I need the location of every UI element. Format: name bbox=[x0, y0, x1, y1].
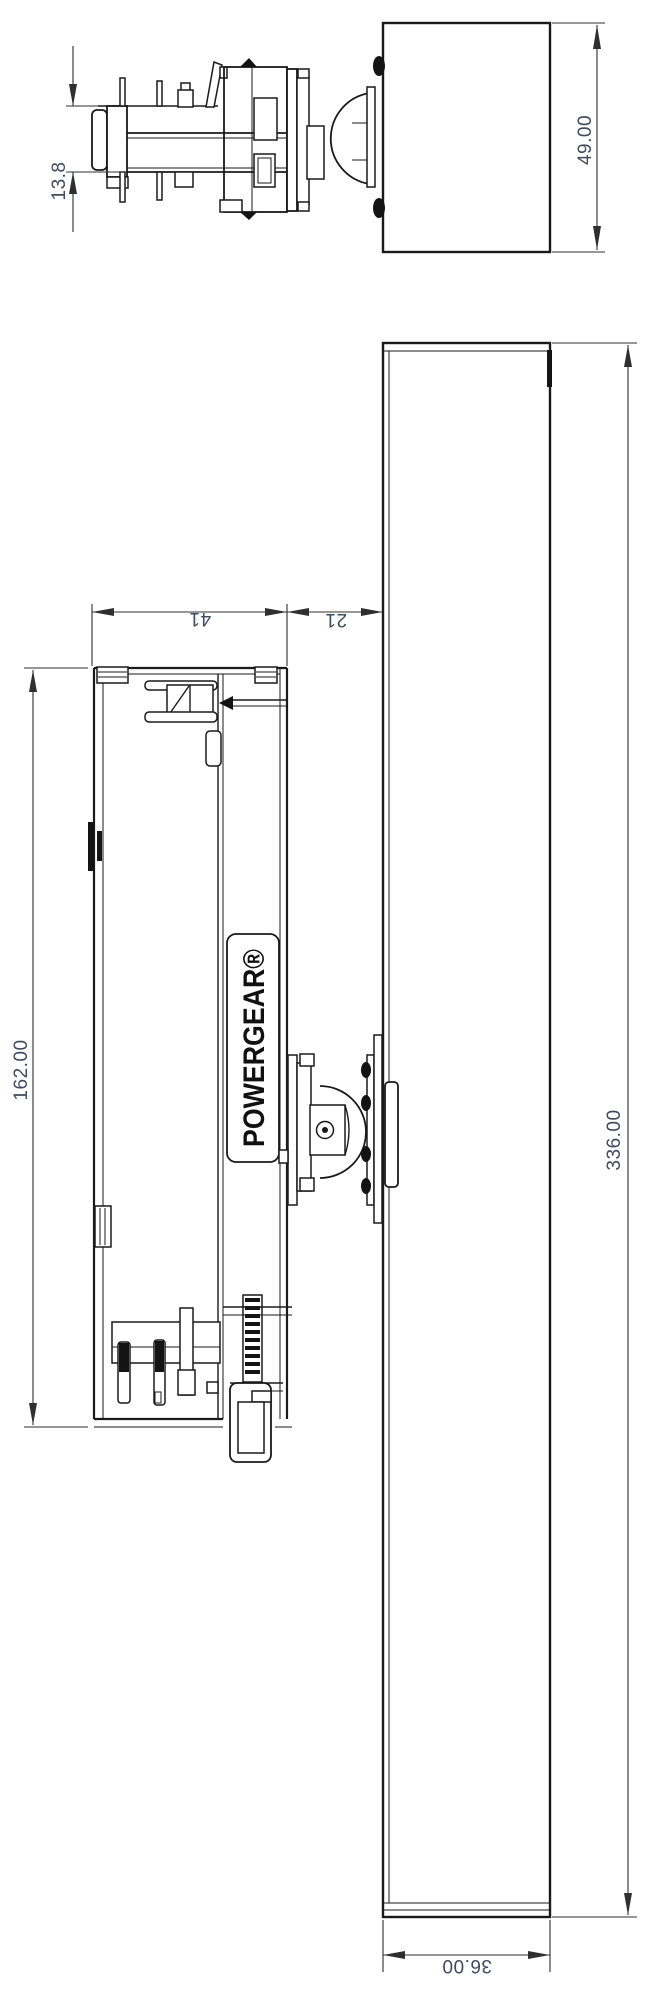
ball-clamp-dome bbox=[331, 93, 370, 184]
dim-21: 21 bbox=[287, 608, 383, 630]
track-profile bbox=[383, 343, 552, 1917]
fixture-body: POWERGEAR® bbox=[88, 667, 292, 1462]
slider-knob bbox=[206, 731, 221, 766]
dim-162: 162.00 bbox=[11, 668, 88, 1427]
dim-36: 36.00 bbox=[383, 1920, 550, 1976]
end-view-mechanism bbox=[92, 58, 375, 220]
dim-49: 49.00 bbox=[552, 23, 605, 252]
edge-clip bbox=[88, 822, 94, 871]
contact-pin bbox=[120, 172, 125, 202]
terminal-block bbox=[145, 681, 217, 722]
dim-336: 336.00 bbox=[552, 343, 637, 1917]
contact-pin bbox=[157, 81, 162, 106]
claw-hook bbox=[361, 1146, 371, 1162]
end-view-housing bbox=[383, 23, 550, 252]
technical-drawing-page: 13.8 49.00 bbox=[0, 0, 657, 2000]
end-view: 13.8 49.00 bbox=[49, 23, 605, 252]
stem-end-cap bbox=[92, 110, 107, 170]
contact-pin bbox=[120, 78, 125, 106]
track-clip bbox=[255, 667, 277, 683]
dim-41: 41 bbox=[92, 604, 287, 666]
latch-pointer bbox=[219, 696, 287, 710]
mounting-foot bbox=[230, 1383, 271, 1462]
drive-mechanism bbox=[112, 1295, 292, 1462]
edge-clip bbox=[97, 831, 102, 861]
dim-36-label: 36.00 bbox=[442, 1955, 492, 1976]
track-clip bbox=[97, 667, 128, 683]
dim-13-8-label: 13.8 bbox=[49, 162, 70, 201]
dim-162-label: 162.00 bbox=[11, 1039, 32, 1100]
adapter-tongue bbox=[385, 1082, 398, 1187]
claw-hook bbox=[361, 1178, 371, 1194]
drawing-sheet: 13.8 49.00 bbox=[0, 0, 657, 2000]
dim-49-label: 49.00 bbox=[575, 115, 596, 165]
edge-connector bbox=[95, 1206, 111, 1247]
powergear-label: POWERGEAR® bbox=[227, 934, 279, 1162]
dim-41-label: 41 bbox=[189, 608, 211, 629]
claw-hook bbox=[361, 1062, 371, 1078]
dim-336-label: 336.00 bbox=[604, 1109, 625, 1170]
contact-pin bbox=[157, 172, 162, 200]
gear-rack bbox=[243, 1295, 262, 1382]
housing-screw-bump bbox=[373, 198, 385, 218]
side-view: POWERGEAR® bbox=[11, 343, 637, 1976]
track-adapter bbox=[279, 1035, 382, 1223]
dim-21-label: 21 bbox=[325, 609, 347, 630]
housing-screw-bump bbox=[373, 56, 385, 76]
claw-hook bbox=[361, 1095, 371, 1111]
powergear-label-text: POWERGEAR® bbox=[238, 949, 271, 1147]
